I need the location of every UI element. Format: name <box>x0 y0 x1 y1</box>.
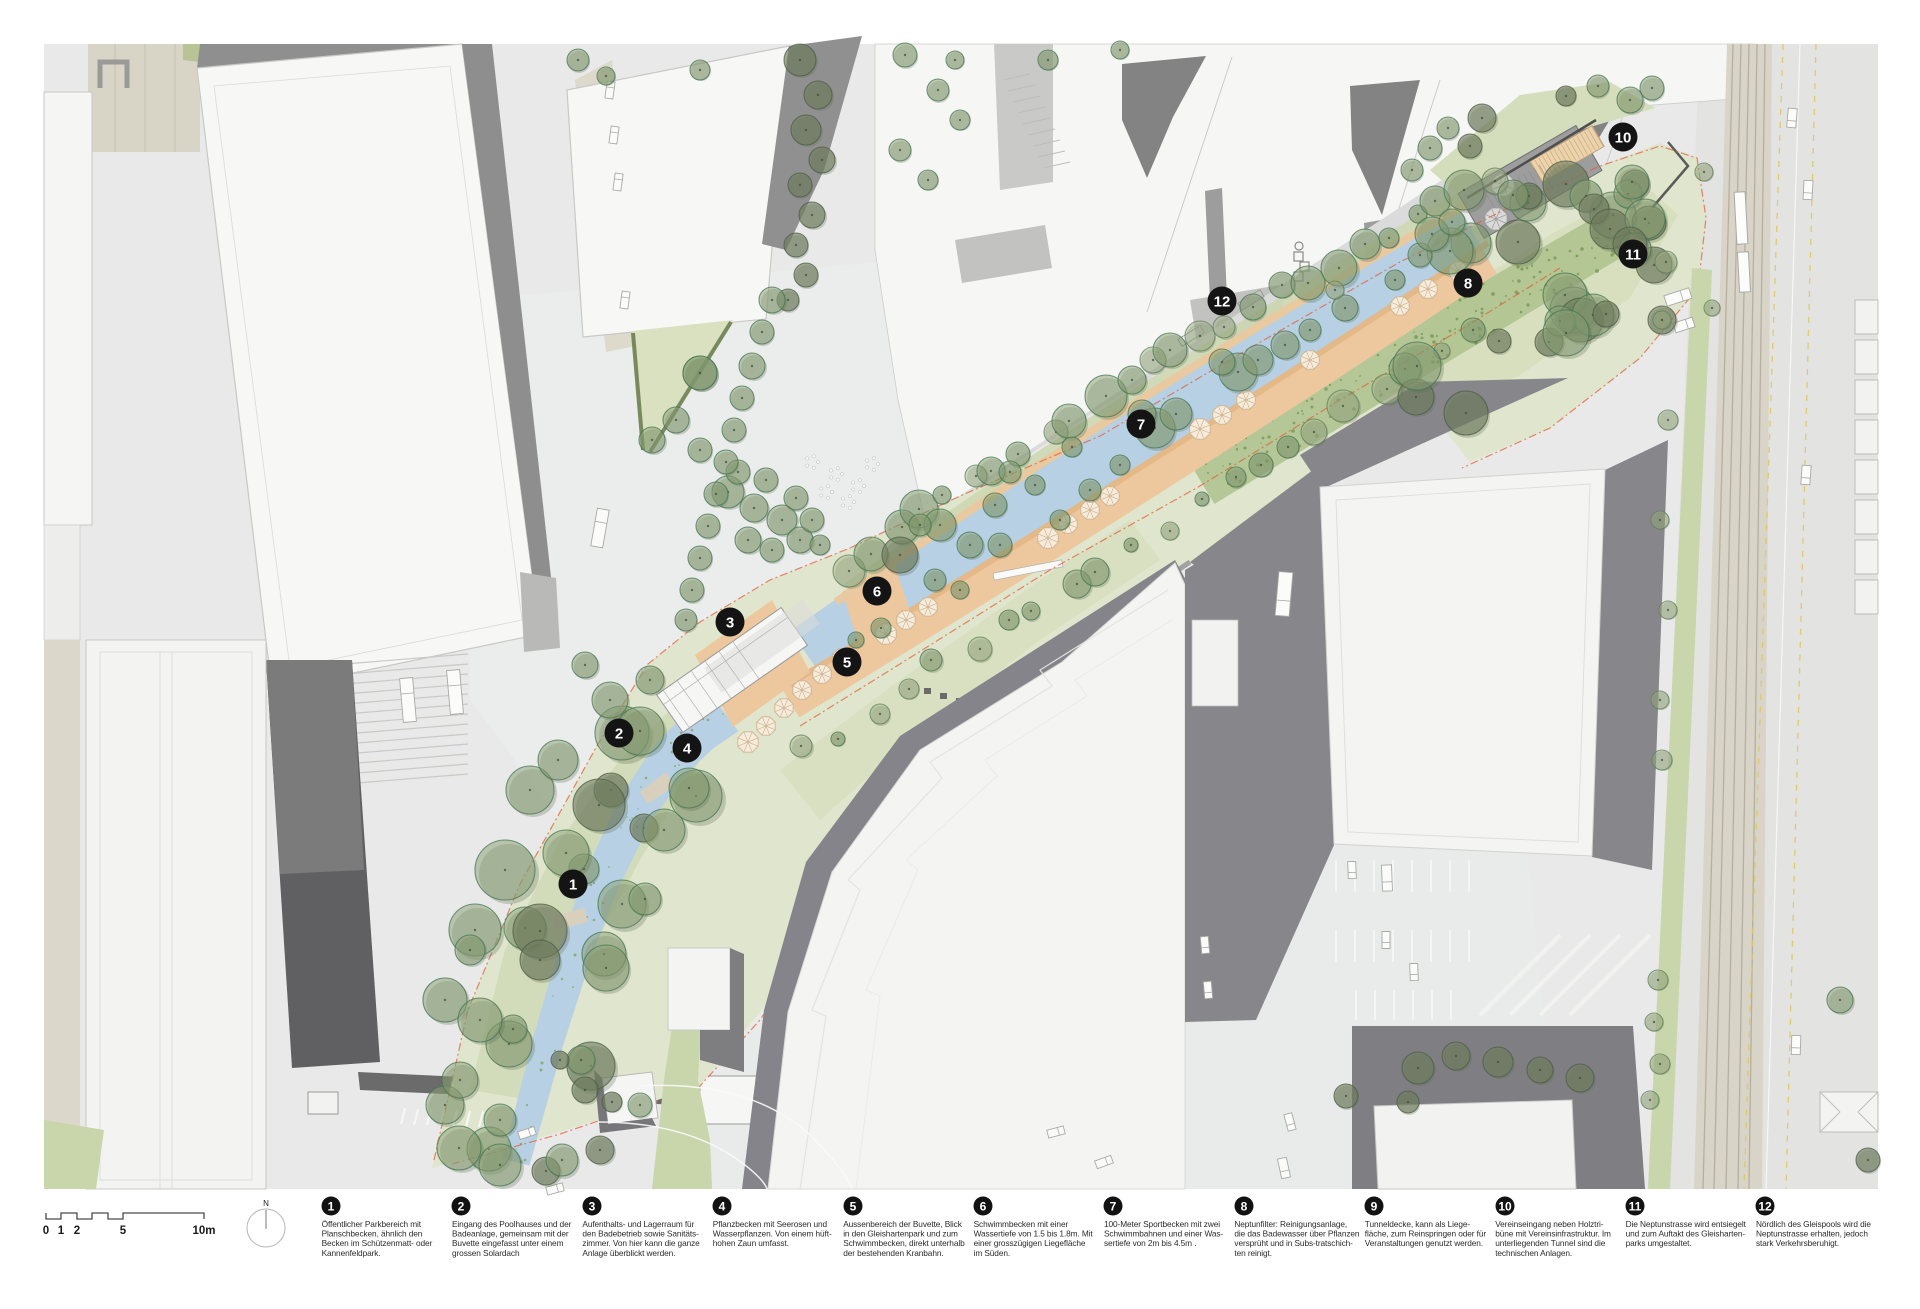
svg-text:den Badebetrieb sowie Sanitäts: den Badebetrieb sowie Sanitäts- <box>582 1229 699 1239</box>
svg-text:Wassertiefe von 1.5 bis 1.8m.: Wassertiefe von 1.5 bis 1.8m. Mit <box>974 1229 1094 1239</box>
svg-text:und zum Auftakt des Gleisharte: und zum Auftakt des Gleisharten- <box>1626 1229 1746 1239</box>
svg-text:1: 1 <box>569 876 577 893</box>
svg-text:10: 10 <box>1615 129 1632 146</box>
svg-text:2: 2 <box>74 1225 80 1237</box>
svg-text:Neptunstrasse erhalten, jedoch: Neptunstrasse erhalten, jedoch <box>1756 1229 1868 1239</box>
svg-text:sertiefe von 2m bis 4.5m .: sertiefe von 2m bis 4.5m . <box>1104 1238 1196 1248</box>
svg-text:8: 8 <box>1241 1199 1248 1213</box>
svg-text:5: 5 <box>850 1199 857 1213</box>
svg-text:Becken im Schützenmatt- oder: Becken im Schützenmatt- oder <box>322 1238 433 1248</box>
svg-text:unterliegenden Tunnel sind die: unterliegenden Tunnel sind die <box>1495 1238 1606 1248</box>
svg-text:11: 11 <box>1625 246 1641 263</box>
svg-text:parks umgestaltet.: parks umgestaltet. <box>1626 1238 1692 1248</box>
svg-text:1: 1 <box>328 1199 335 1213</box>
svg-text:12: 12 <box>1214 293 1231 310</box>
svg-text:N: N <box>263 1199 269 1208</box>
svg-text:Veranstaltungen genutzt werden: Veranstaltungen genutzt werden. <box>1365 1238 1483 1248</box>
svg-text:Nördlich des Gleispools wird d: Nördlich des Gleispools wird die <box>1756 1219 1871 1229</box>
svg-text:4: 4 <box>719 1199 726 1213</box>
svg-text:büne mit Vereinsinfrastruktur.: büne mit Vereinsinfrastruktur. Im <box>1495 1229 1611 1239</box>
svg-text:Aussenbereich der Buvette, Bli: Aussenbereich der Buvette, Blick <box>843 1219 963 1229</box>
svg-text:einer grosszügigen Liegefläche: einer grosszügigen Liegefläche <box>974 1238 1086 1248</box>
svg-text:7: 7 <box>1110 1199 1117 1213</box>
svg-text:Schwimmbecken, direkt unterhal: Schwimmbecken, direkt unterhalb <box>843 1238 965 1248</box>
svg-text:7: 7 <box>1137 416 1145 433</box>
svg-text:Neptunfilter: Reinigungsanlage: Neptunfilter: Reinigungsanlage, <box>1234 1219 1347 1229</box>
svg-text:1: 1 <box>58 1225 65 1237</box>
svg-text:Schwimmbahnen und einer Was-: Schwimmbahnen und einer Was- <box>1104 1229 1223 1239</box>
svg-text:4: 4 <box>683 740 692 757</box>
svg-text:Anlage überblickt werden.: Anlage überblickt werden. <box>582 1248 675 1258</box>
svg-text:Eingang des Poolhauses und der: Eingang des Poolhauses und der <box>452 1219 572 1229</box>
svg-text:der bestehenden Kranbahn.: der bestehenden Kranbahn. <box>843 1248 943 1258</box>
svg-text:2: 2 <box>458 1199 465 1213</box>
svg-text:fläche, zum Reinspringen oder: fläche, zum Reinspringen oder für <box>1365 1229 1487 1239</box>
svg-text:Aufenthalts- und Lagerraum für: Aufenthalts- und Lagerraum für <box>582 1219 694 1229</box>
svg-text:10: 10 <box>1498 1199 1512 1213</box>
svg-text:0: 0 <box>43 1225 49 1237</box>
svg-text:10m: 10m <box>192 1225 215 1237</box>
svg-text:3: 3 <box>589 1199 596 1213</box>
svg-text:6: 6 <box>980 1199 987 1213</box>
svg-text:die das Badewasser über Pflanz: die das Badewasser über Pflanzen <box>1234 1229 1360 1239</box>
svg-text:2: 2 <box>615 725 623 742</box>
svg-text:Schwimmbecken mit einer: Schwimmbecken mit einer <box>974 1219 1069 1229</box>
svg-text:im Süden.: im Süden. <box>974 1248 1010 1258</box>
svg-text:Öffentlicher Parkbereich mit: Öffentlicher Parkbereich mit <box>322 1219 422 1229</box>
svg-text:Planschbecken, ähnlich den: Planschbecken, ähnlich den <box>322 1229 423 1239</box>
svg-text:3: 3 <box>726 614 734 631</box>
svg-text:Vereinseingang neben Holztri-: Vereinseingang neben Holztri- <box>1495 1219 1604 1229</box>
svg-text:grossen Solardach: grossen Solardach <box>452 1248 520 1258</box>
svg-text:8: 8 <box>1464 275 1472 292</box>
svg-text:Tunneldecke, kann als Liege-: Tunneldecke, kann als Liege- <box>1365 1219 1471 1229</box>
svg-text:Kannenfeldpark.: Kannenfeldpark. <box>322 1248 381 1258</box>
svg-text:6: 6 <box>873 583 881 600</box>
svg-text:100-Meter Sportbecken mit zwei: 100-Meter Sportbecken mit zwei <box>1104 1219 1220 1229</box>
svg-text:9: 9 <box>1371 1199 1378 1213</box>
svg-text:11: 11 <box>1629 1199 1642 1213</box>
svg-text:Wasserpflanzen. Von einem hüft: Wasserpflanzen. Von einem hüft- <box>713 1229 832 1239</box>
svg-text:Badeanlage, gemeinsam mit der: Badeanlage, gemeinsam mit der <box>452 1229 569 1239</box>
svg-text:Pflanzbecken mit Seerosen und: Pflanzbecken mit Seerosen und <box>713 1219 828 1229</box>
svg-text:5: 5 <box>120 1225 127 1237</box>
svg-text:versprüht und in Subs-tratschi: versprüht und in Subs-tratschich- <box>1234 1238 1353 1248</box>
svg-text:Buvette eingefasst unter einem: Buvette eingefasst unter einem <box>452 1238 564 1248</box>
svg-text:technischen Anlagen.: technischen Anlagen. <box>1495 1248 1572 1258</box>
svg-text:5: 5 <box>843 654 851 671</box>
svg-text:12: 12 <box>1758 1199 1772 1213</box>
svg-text:stark Verkehrsberuhigt.: stark Verkehrsberuhigt. <box>1756 1238 1839 1248</box>
svg-text:hohen Zaun umfasst.: hohen Zaun umfasst. <box>713 1238 789 1248</box>
svg-text:in den Gleishartenpark und zum: in den Gleishartenpark und zum <box>843 1229 958 1239</box>
svg-text:Die Neptunstrasse wird entsieg: Die Neptunstrasse wird entsiegelt <box>1626 1219 1747 1229</box>
svg-text:zimmer. Von hier kann die ganz: zimmer. Von hier kann die ganze <box>582 1238 700 1248</box>
svg-text:ten reinigt.: ten reinigt. <box>1234 1248 1272 1258</box>
